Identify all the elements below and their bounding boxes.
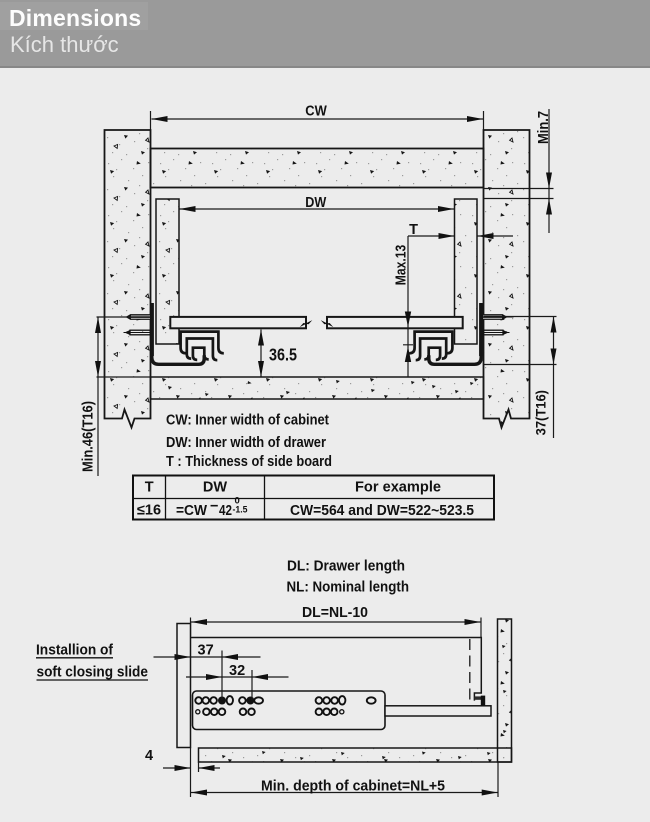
svg-text:CW: Inner width of cabinet: CW: Inner width of cabinet: [166, 413, 329, 429]
svg-text:DW: Inner width of drawer: DW: Inner width of drawer: [166, 435, 326, 451]
svg-text:DW: DW: [203, 480, 227, 496]
svg-text:=CW: =CW: [176, 503, 207, 519]
svg-text:T: T: [409, 222, 418, 238]
svg-text:32: 32: [229, 663, 245, 679]
svg-text:T: T: [145, 480, 154, 496]
svg-text:Min. depth of cabinet=NL+5: Min. depth of cabinet=NL+5: [261, 778, 445, 795]
svg-text:soft closing slide: soft closing slide: [37, 664, 149, 681]
svg-text:CW: CW: [305, 104, 327, 120]
svg-text:Min.46(T16): Min.46(T16): [81, 401, 97, 472]
svg-text:36.5: 36.5: [269, 345, 297, 365]
svg-text:DL=NL-10: DL=NL-10: [302, 604, 368, 621]
svg-text:−: −: [210, 499, 218, 515]
svg-text:37(T16): 37(T16): [534, 390, 549, 435]
svg-text:Installion of: Installion of: [36, 641, 114, 658]
svg-text:4: 4: [145, 748, 153, 764]
svg-text:DW: DW: [305, 195, 326, 211]
svg-text:Max.13: Max.13: [392, 245, 409, 286]
svg-text:-1.5: -1.5: [233, 505, 249, 516]
svg-text:42: 42: [219, 503, 232, 519]
svg-text:T : Thickness of side board: T : Thickness of side board: [166, 454, 332, 470]
svg-text:37: 37: [198, 643, 214, 659]
svg-text:≤16: ≤16: [137, 503, 161, 519]
svg-text:Min.7: Min.7: [535, 111, 552, 144]
svg-text:CW=564 and DW=522~523.5: CW=564 and DW=522~523.5: [290, 503, 474, 519]
svg-text:For example: For example: [355, 480, 441, 496]
svg-text:NL: Nominal length: NL: Nominal length: [287, 580, 410, 596]
svg-text:DL: Drawer length: DL: Drawer length: [287, 559, 405, 575]
